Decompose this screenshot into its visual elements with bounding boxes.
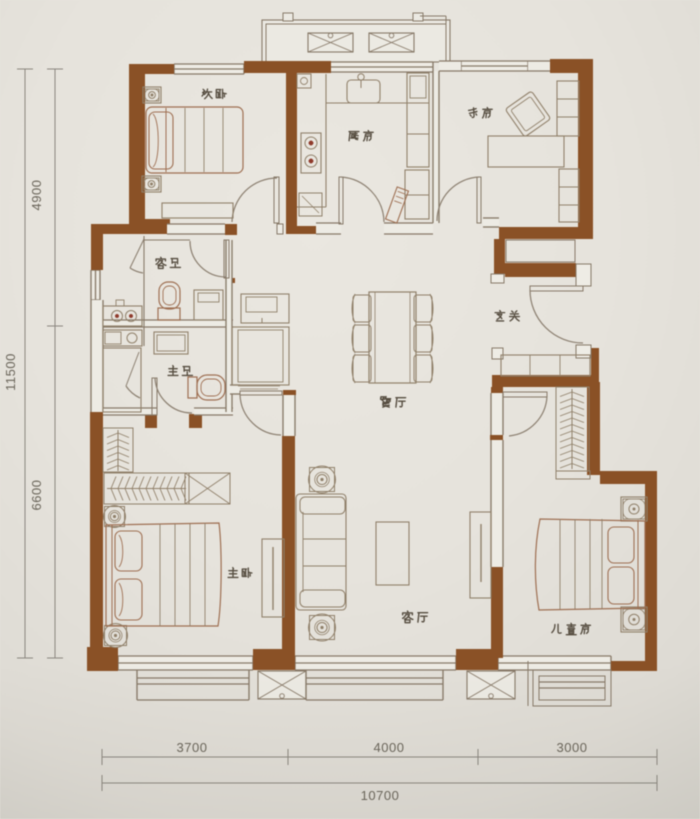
svg-text:4900: 4900 [29, 180, 44, 211]
svg-text:11500: 11500 [3, 353, 18, 391]
svg-text:6600: 6600 [29, 480, 44, 511]
